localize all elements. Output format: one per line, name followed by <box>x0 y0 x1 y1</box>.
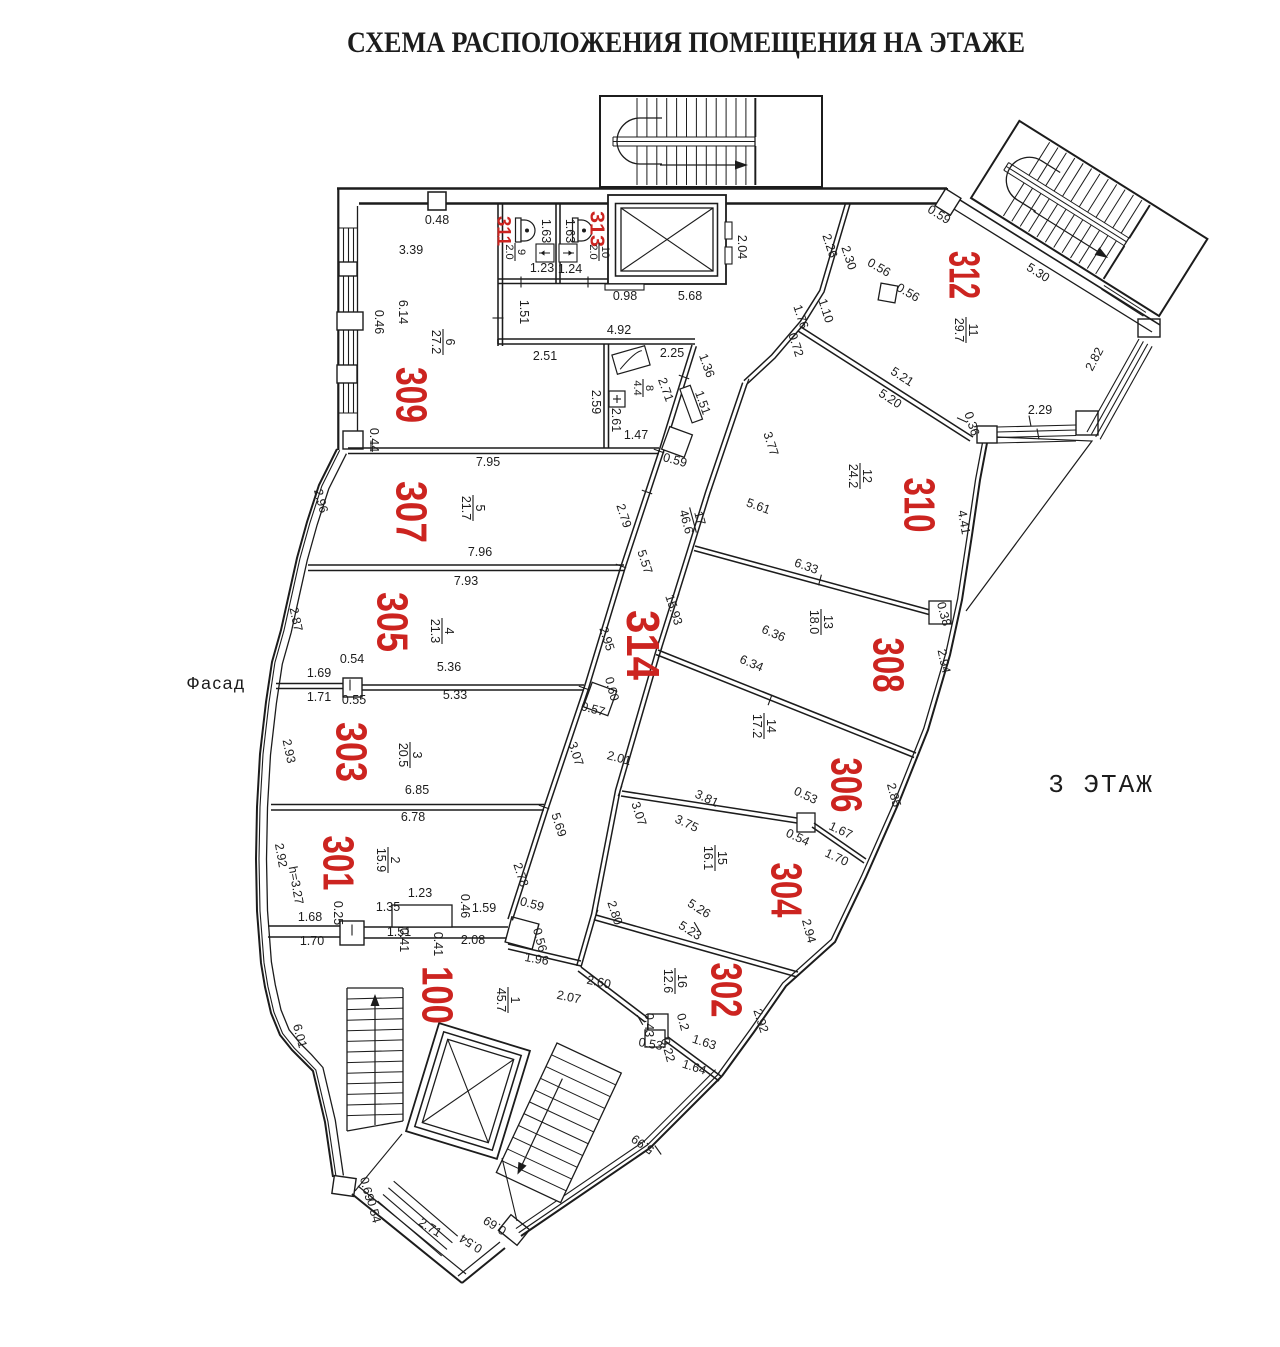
svg-text:2.0: 2.0 <box>503 244 515 259</box>
svg-text:1.24: 1.24 <box>558 262 582 276</box>
svg-text:301: 301 <box>313 836 362 891</box>
svg-text:15: 15 <box>715 851 729 865</box>
svg-text:1.68: 1.68 <box>298 910 322 924</box>
svg-text:7.96: 7.96 <box>468 545 492 559</box>
svg-text:17.2: 17.2 <box>750 714 764 738</box>
svg-text:3 ЭТАЖ: 3 ЭТАЖ <box>1048 770 1154 800</box>
svg-text:2: 2 <box>388 857 402 864</box>
svg-text:0.25: 0.25 <box>331 901 345 925</box>
svg-text:0.46: 0.46 <box>372 310 386 334</box>
svg-text:1.51: 1.51 <box>387 925 411 939</box>
svg-text:16.1: 16.1 <box>701 846 715 870</box>
svg-text:12: 12 <box>860 469 874 483</box>
svg-text:311: 311 <box>493 216 514 246</box>
svg-text:6.85: 6.85 <box>405 783 429 797</box>
svg-text:15.9: 15.9 <box>374 848 388 872</box>
svg-text:302: 302 <box>701 963 750 1018</box>
svg-text:18.0: 18.0 <box>807 610 821 634</box>
svg-text:4: 4 <box>442 628 456 635</box>
svg-text:6: 6 <box>443 339 457 346</box>
svg-text:12.6: 12.6 <box>661 969 675 993</box>
svg-text:9: 9 <box>515 249 527 255</box>
svg-text:7.93: 7.93 <box>454 574 478 588</box>
svg-text:14: 14 <box>764 719 778 733</box>
svg-text:313: 313 <box>585 211 607 247</box>
svg-text:СХЕМА РАСПОЛОЖЕНИЯ ПОМЕЩЕНИЯ Н: СХЕМА РАСПОЛОЖЕНИЯ ПОМЕЩЕНИЯ НА ЭТАЖЕ <box>347 26 1025 59</box>
svg-text:5: 5 <box>473 505 487 512</box>
svg-text:1.63: 1.63 <box>563 219 577 243</box>
svg-text:1.70: 1.70 <box>300 934 324 948</box>
svg-text:4.92: 4.92 <box>607 323 631 337</box>
svg-text:314: 314 <box>617 610 669 680</box>
svg-text:45.7: 45.7 <box>494 988 508 1012</box>
svg-text:2.29: 2.29 <box>1028 403 1052 417</box>
svg-text:1.59: 1.59 <box>472 901 496 915</box>
svg-text:1: 1 <box>508 997 522 1004</box>
svg-text:4.4: 4.4 <box>631 380 643 395</box>
svg-text:20.5: 20.5 <box>396 743 410 767</box>
svg-text:310: 310 <box>894 478 943 533</box>
svg-text:16: 16 <box>675 974 689 988</box>
svg-text:307: 307 <box>386 481 435 543</box>
svg-text:306: 306 <box>821 758 870 813</box>
svg-text:1.35: 1.35 <box>376 900 400 914</box>
svg-text:11: 11 <box>966 324 980 337</box>
svg-text:1.69: 1.69 <box>307 666 331 680</box>
svg-text:Фасад: Фасад <box>186 673 245 693</box>
svg-text:10: 10 <box>599 246 611 258</box>
svg-text:304: 304 <box>761 863 810 918</box>
svg-text:0.46: 0.46 <box>458 894 472 918</box>
svg-text:305: 305 <box>367 592 416 652</box>
svg-text:21.3: 21.3 <box>428 619 442 643</box>
svg-text:1.47: 1.47 <box>624 428 648 442</box>
svg-text:2.51: 2.51 <box>533 349 557 363</box>
svg-text:13: 13 <box>821 615 835 629</box>
svg-text:1.51: 1.51 <box>517 300 531 324</box>
svg-text:1.23: 1.23 <box>408 886 432 900</box>
svg-text:2.61: 2.61 <box>609 408 623 432</box>
svg-text:0.55: 0.55 <box>342 693 366 707</box>
svg-text:2.25: 2.25 <box>660 346 684 360</box>
svg-text:2.04: 2.04 <box>735 235 749 259</box>
svg-text:6.14: 6.14 <box>396 300 410 324</box>
svg-text:1.23: 1.23 <box>530 261 554 275</box>
svg-text:5.36: 5.36 <box>437 660 461 674</box>
svg-text:7.95: 7.95 <box>476 455 500 469</box>
svg-text:100: 100 <box>412 966 461 1024</box>
svg-text:2.0: 2.0 <box>587 244 599 259</box>
svg-text:2.08: 2.08 <box>461 933 485 947</box>
svg-text:1.71: 1.71 <box>307 690 331 704</box>
svg-text:1.63: 1.63 <box>539 219 553 243</box>
svg-text:3.39: 3.39 <box>399 243 423 257</box>
svg-text:6.78: 6.78 <box>401 810 425 824</box>
svg-text:0.43: 0.43 <box>642 1013 656 1037</box>
svg-text:0.44: 0.44 <box>367 428 381 452</box>
svg-text:2.59: 2.59 <box>589 390 603 414</box>
svg-text:308: 308 <box>863 638 912 693</box>
svg-text:21.7: 21.7 <box>459 496 473 520</box>
svg-text:0.41: 0.41 <box>431 932 445 956</box>
svg-text:309: 309 <box>386 367 435 423</box>
svg-text:303: 303 <box>326 722 375 782</box>
svg-text:29.7: 29.7 <box>952 318 966 342</box>
svg-text:8: 8 <box>643 385 655 391</box>
svg-text:24.2: 24.2 <box>846 464 860 488</box>
svg-text:5.68: 5.68 <box>678 289 702 303</box>
svg-text:0.48: 0.48 <box>425 213 449 227</box>
svg-text:27.2: 27.2 <box>429 330 443 354</box>
svg-text:312: 312 <box>939 251 988 299</box>
svg-text:0.54: 0.54 <box>340 652 364 666</box>
svg-text:3: 3 <box>410 752 424 759</box>
svg-text:5.33: 5.33 <box>443 688 467 702</box>
svg-text:0.98: 0.98 <box>613 289 637 303</box>
